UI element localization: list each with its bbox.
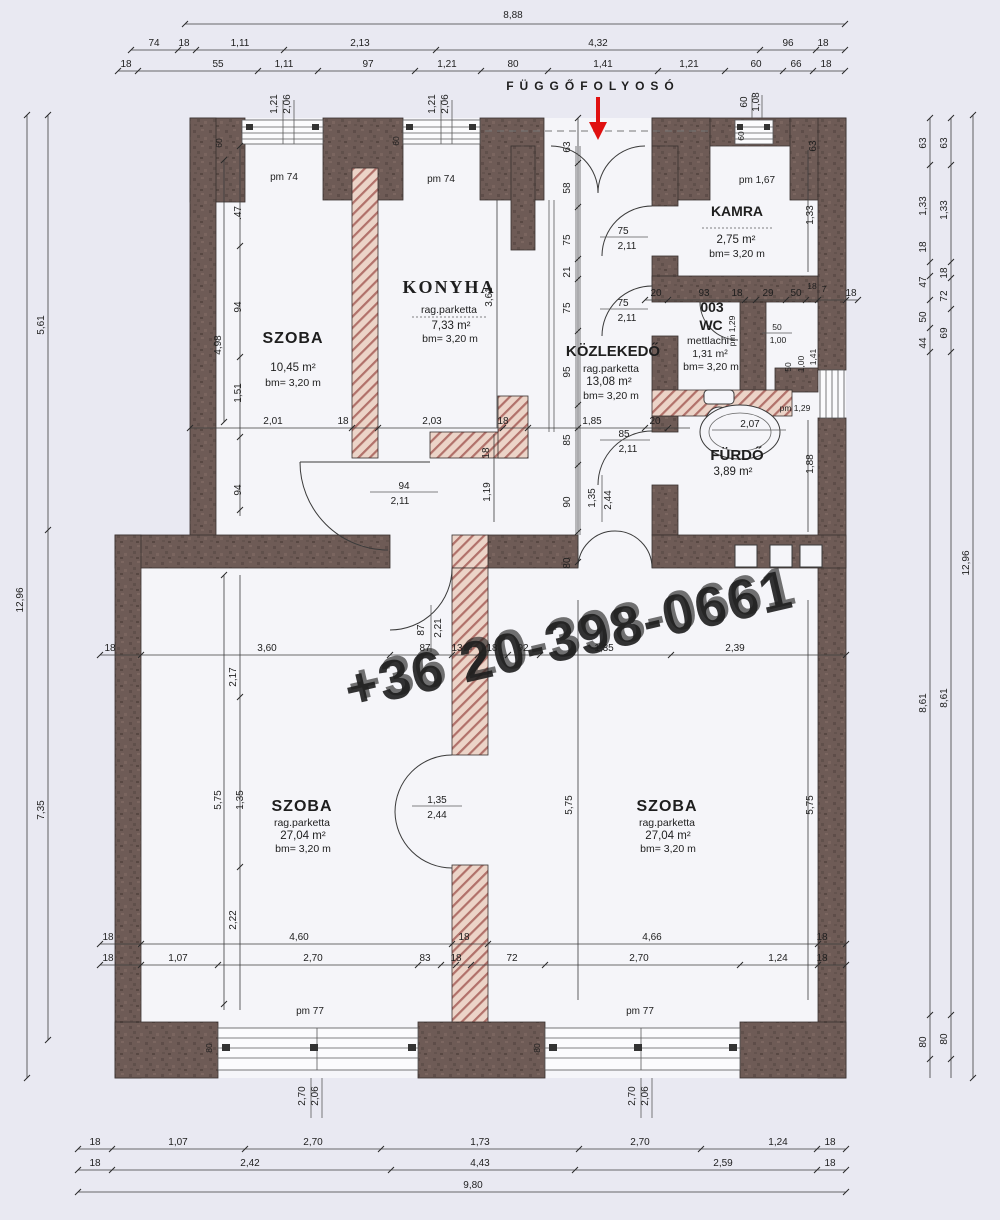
wall-wc-right <box>740 302 766 390</box>
dim-label: 18 <box>89 1158 101 1169</box>
wall-furdo-left-b <box>652 485 678 535</box>
dim-label: 1,73 <box>470 1137 490 1148</box>
dim-label: 87 <box>416 624 427 636</box>
dim-label: 18 <box>120 59 132 70</box>
wall-left-lower <box>115 535 141 1078</box>
dim-label: 63 <box>918 137 929 149</box>
dim-label: 8,88 <box>503 10 523 21</box>
dim-label: pm 77 <box>296 1006 324 1017</box>
room-height: bm= 3,20 m <box>275 843 331 855</box>
dim-label: 2,01 <box>263 416 283 427</box>
dim-label: 1,11 <box>275 59 294 70</box>
dim-label: 2,44 <box>427 810 447 821</box>
toilet-tank <box>704 390 734 404</box>
dim-label: 1,35 <box>587 488 598 508</box>
dim-label: 60 <box>214 138 224 148</box>
wall-bottom-center <box>418 1022 545 1078</box>
dim-label: pm 74 <box>270 172 298 183</box>
dim-label: 44 <box>918 337 929 349</box>
room-area: 7,33 m² <box>432 320 471 332</box>
dim-label: 18 <box>102 932 114 943</box>
dim-label: 18 <box>450 953 462 964</box>
room-area: 13,08 m² <box>586 376 632 388</box>
dim-label: 1,33 <box>918 196 929 216</box>
room-area: 27,04 m² <box>645 830 691 842</box>
room-height: bm= 3,20 m <box>583 390 639 402</box>
dim-label: 2,13 <box>350 38 370 49</box>
room-height: bm= 3,20 m <box>709 248 765 260</box>
window-5 <box>545 1028 740 1070</box>
room-area: 27,04 m² <box>280 830 326 842</box>
dim-label: 80 <box>532 1043 542 1053</box>
dim-label: 1,24 <box>768 1137 788 1148</box>
room-name: KÖZLEKEDŐ <box>566 342 661 360</box>
room-name: KONYHA <box>403 277 496 297</box>
dim-label: 50 <box>783 362 793 372</box>
dim-label: 60 <box>750 59 762 70</box>
hall-label: FÜGGŐFOLYOSÓ <box>506 78 680 93</box>
dim-label: 9,80 <box>463 1180 483 1191</box>
dim-label: 60 <box>391 136 401 146</box>
wall-mid-band-left <box>115 535 390 568</box>
dim-label: 1,00 <box>796 355 806 372</box>
dim-label: 58 <box>562 182 573 194</box>
dim-label: 1,51 <box>233 383 244 403</box>
wall-right-lower <box>818 418 846 1078</box>
dim-label: 1,41 <box>808 348 818 365</box>
dim-label: 50 <box>772 322 782 332</box>
dim-label: 1,08 <box>751 92 762 112</box>
dim-label: 74 <box>148 38 160 49</box>
room-area: 3,89 m² <box>714 466 753 478</box>
dim-label: 94 <box>233 301 244 313</box>
dim-label: 2,11 <box>618 313 637 324</box>
room-height: bm= 3,20 m <box>422 333 478 345</box>
floorplan-page: 8,88 74 18 1,11 2,13 4,32 96 18 18 55 1,… <box>0 0 1000 1220</box>
room-floor: rag.parketta <box>639 817 695 829</box>
dim-label: 2,70 <box>303 953 323 964</box>
dim-label: 2,06 <box>440 94 451 114</box>
room-name: FÜRDŐ <box>710 446 764 464</box>
dim-label: 3,60 <box>257 643 277 654</box>
room-floor: mettlachi <box>687 335 729 347</box>
dim-label: 1,19 <box>482 482 493 502</box>
dim-label: 2,11 <box>391 496 410 507</box>
wall-szoba-partition-lower <box>452 865 488 1022</box>
dim-label: 50 <box>918 311 929 323</box>
room-name: SZOBA <box>272 798 333 815</box>
dim-label: 18 <box>824 1137 836 1148</box>
dim-label: 60 <box>736 131 746 141</box>
dim-label: 75 <box>617 298 629 309</box>
room-area: 1,31 m² <box>692 348 728 360</box>
dim-label: 1,11 <box>231 38 250 49</box>
dim-label: 20 <box>649 416 661 427</box>
dim-label: 18 <box>89 1137 101 1148</box>
dim-label: 1,21 <box>269 94 280 114</box>
wall-mid-pier <box>452 535 488 568</box>
dim-label: 75 <box>562 234 573 246</box>
dim-label: 18 <box>731 288 743 299</box>
dim-label: 18 <box>918 241 929 253</box>
dim-label: 1,21 <box>437 59 457 70</box>
dim-label: pm 77 <box>626 1006 654 1017</box>
window-right-wall <box>820 370 844 418</box>
dim-label: 66 <box>790 59 802 70</box>
dim-label: 18 <box>817 38 829 49</box>
dim-label: 18 <box>104 643 116 654</box>
dim-label: 2,70 <box>303 1137 323 1148</box>
dim-label: 1,41 <box>593 59 613 70</box>
dim-label: 80 <box>204 1043 214 1053</box>
dim-label: 80 <box>939 1033 950 1045</box>
dim-label: 72 <box>939 290 950 302</box>
dim-label: 60 <box>739 96 750 108</box>
dim-label: pm 1,67 <box>739 175 776 186</box>
dim-right: 63 1,33 18 47 50 44 8,61 80 63 1,33 18 7… <box>918 112 976 1081</box>
dim-label: 63 <box>562 141 573 153</box>
dim-label: 18 <box>481 447 492 459</box>
dim-label: 18 <box>178 38 190 49</box>
wall-kamra-left-a <box>652 146 678 206</box>
dim-label: 85 <box>562 434 573 446</box>
dim-label: 2,70 <box>630 1137 650 1148</box>
shaft-3 <box>800 545 822 567</box>
dim-label: 2,70 <box>627 1086 638 1106</box>
dim-label: 12,96 <box>961 550 972 575</box>
wall-bottom-left <box>115 1022 218 1078</box>
dim-left: 12,96 5,61 7,35 <box>15 112 51 1081</box>
dim-label: 1,21 <box>679 59 699 70</box>
dim-label: 2,22 <box>228 910 239 930</box>
dim-label: 18 <box>458 932 470 943</box>
dim-label: 97 <box>362 59 374 70</box>
dim-label: 93 <box>698 288 710 299</box>
room-height: bm= 3,20 m <box>683 361 739 373</box>
dim-label: 18 <box>816 932 828 943</box>
dim-label: 7 <box>822 284 827 294</box>
room-number: 003 <box>700 299 724 315</box>
dim-label: 21 <box>562 266 573 278</box>
dim-label: 18 <box>807 281 817 291</box>
dim-label: 5,75 <box>564 795 575 815</box>
dim-label: 4,60 <box>289 932 309 943</box>
dim-label: 85 <box>618 429 630 440</box>
dim-top: 8,88 74 18 1,11 2,13 4,32 96 18 18 55 1,… <box>115 10 848 74</box>
room-szoba2: SZOBA rag.parketta 27,04 m² bm= 3,20 m <box>272 798 333 855</box>
room-floor: rag.parketta <box>274 817 330 829</box>
room-name: WC <box>699 317 722 333</box>
room-name: KAMRA <box>711 203 763 219</box>
dim-label: 1,07 <box>168 1137 188 1148</box>
dim-label: 2,06 <box>310 1086 321 1106</box>
wall-bottom-right <box>740 1022 846 1078</box>
dim-label: 18 <box>102 953 114 964</box>
dim-label: 80 <box>507 59 519 70</box>
dim-label: 80 <box>918 1036 929 1048</box>
dim-label: 18 <box>820 59 832 70</box>
dim-label: 18 <box>824 1158 836 1169</box>
dim-label: 55 <box>212 59 224 70</box>
dim-label: pm 1,29 <box>780 403 811 413</box>
dim-label: 4,43 <box>470 1158 490 1169</box>
dim-label: 18 <box>845 288 857 299</box>
dim-label: 5,75 <box>213 790 224 810</box>
dim-label: 12,96 <box>15 587 26 612</box>
window-1 <box>242 120 323 144</box>
dim-label: 2,11 <box>618 241 637 252</box>
dim-label: 1,88 <box>805 454 816 474</box>
wall-konyha-west <box>352 168 378 458</box>
dim-label: 47 <box>918 276 929 288</box>
room-floor: rag.parketta <box>583 363 639 375</box>
dim-label: 2,44 <box>603 490 614 510</box>
window-2 <box>403 120 480 144</box>
dim-label: 2,42 <box>240 1158 260 1169</box>
dim-label: 69 <box>939 327 950 339</box>
dim-label: 95 <box>562 366 573 378</box>
dim-label: 4,98 <box>213 335 224 355</box>
dim-label: 1,33 <box>805 205 816 225</box>
dim-label: 90 <box>562 496 573 508</box>
dim-label: 1,35 <box>427 795 447 806</box>
dim-label: 2,70 <box>629 953 649 964</box>
dim-label: 1,35 <box>235 790 246 810</box>
dim-label: 1,33 <box>939 200 950 220</box>
window-4 <box>218 1028 418 1070</box>
dim-label: 18 <box>497 416 509 427</box>
dim-label: 63 <box>939 137 950 149</box>
dim-label: 8,61 <box>918 693 929 713</box>
dim-label: 50 <box>790 288 802 299</box>
dim-label: 94 <box>398 481 410 492</box>
room-name: SZOBA <box>263 330 324 347</box>
room-floor: rag.parketta <box>421 304 477 316</box>
dim-label: 2,03 <box>422 416 442 427</box>
dim-label: 2,39 <box>725 643 745 654</box>
wall-left-upper <box>190 118 216 545</box>
dim-label: 2,17 <box>228 667 239 687</box>
dim-label: 1,00 <box>770 335 787 345</box>
room-name: SZOBA <box>637 798 698 815</box>
dim-label: 1,21 <box>427 94 438 114</box>
dim-label: 4,32 <box>588 38 608 49</box>
dim-label: .47 <box>233 206 244 220</box>
dim-label: 75 <box>617 226 629 237</box>
dim-label: 1,07 <box>168 953 188 964</box>
dim-label: 29 <box>762 288 774 299</box>
room-szoba3: SZOBA rag.parketta 27,04 m² bm= 3,20 m <box>637 798 698 855</box>
dim-bottom: 18 1,07 2,70 1,73 2,70 1,24 18 18 2,42 4… <box>75 1137 849 1195</box>
dim-label: 7,35 <box>36 800 47 820</box>
dim-label: 18 <box>939 267 950 279</box>
wall-konyha-finger <box>511 146 535 250</box>
wall-konyha-south-step <box>498 396 528 458</box>
dim-label: 80 <box>562 557 573 569</box>
room-area: 2,75 m² <box>717 234 756 246</box>
dim-label: 20 <box>650 288 662 299</box>
dim-label: 94 <box>233 484 244 496</box>
dim-label: 2,07 <box>740 419 760 430</box>
dim-label: 63 <box>808 140 819 152</box>
dim-label: 5,75 <box>805 795 816 815</box>
dim-label: 72 <box>506 953 518 964</box>
dim-label: 96 <box>782 38 794 49</box>
wall-right-upper <box>818 118 846 370</box>
room-area: 10,45 m² <box>270 362 316 374</box>
room-height: bm= 3,20 m <box>640 843 696 855</box>
floorplan-drawing: 8,88 74 18 1,11 2,13 4,32 96 18 18 55 1,… <box>0 0 1000 1220</box>
dim-label: 2,11 <box>619 444 638 455</box>
dim-label: 75 <box>562 302 573 314</box>
dim-label: 2,59 <box>713 1158 733 1169</box>
dim-label: 4,66 <box>642 932 662 943</box>
dim-label: 2,06 <box>282 94 293 114</box>
dim-label: pm 74 <box>427 174 455 185</box>
dim-label: 83 <box>419 953 431 964</box>
dim-label: 18 <box>337 416 349 427</box>
dim-label: 2,70 <box>297 1086 308 1106</box>
dim-label: 18 <box>816 953 828 964</box>
dim-label: 8,61 <box>939 688 950 708</box>
room-height: bm= 3,20 m <box>265 377 321 389</box>
dim-label: 2,06 <box>640 1086 651 1106</box>
dim-label: 1,24 <box>768 953 788 964</box>
dim-label: 5,61 <box>36 315 47 335</box>
dim-label: 1,85 <box>582 416 602 427</box>
